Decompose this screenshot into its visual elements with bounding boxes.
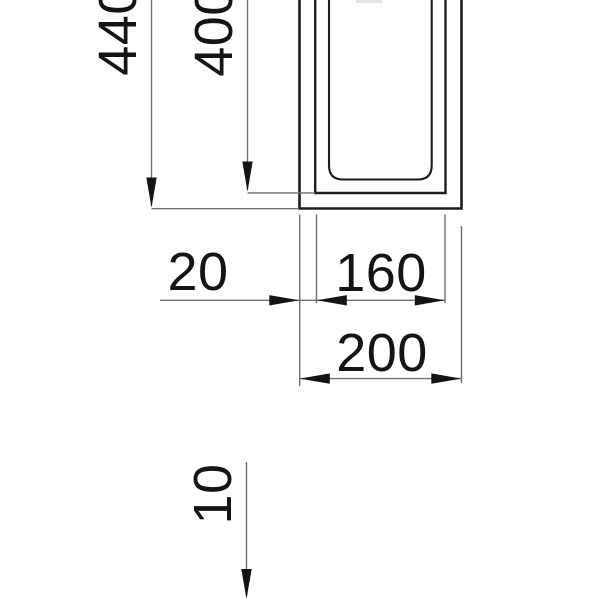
label-wall-20: 20 [167, 242, 228, 302]
label-bottom-10: 10 [183, 463, 243, 524]
arrow-20-right [269, 295, 299, 305]
dimension-labels: 440 400 20 160 200 10 [88, 0, 428, 525]
arrow-440-down [146, 178, 156, 208]
arrow-200-right [431, 373, 461, 383]
label-height-440: 440 [88, 0, 148, 76]
label-outer-width-200: 200 [336, 323, 428, 383]
arrow-400-down [242, 162, 252, 192]
cropped-edge-artifact [356, 0, 382, 3]
profile-liner-contour [329, 0, 432, 180]
label-inner-width-160: 160 [335, 243, 427, 303]
technical-drawing-canvas: 440 400 20 160 200 10 [0, 0, 600, 600]
arrow-200-left [300, 373, 330, 383]
label-depth-400: 400 [184, 0, 244, 77]
profile-outer-contour [300, 0, 462, 209]
profile-cross-section [300, 0, 462, 209]
arrow-10-down [241, 569, 251, 599]
profile-inner-wall-contour [315, 0, 445, 193]
